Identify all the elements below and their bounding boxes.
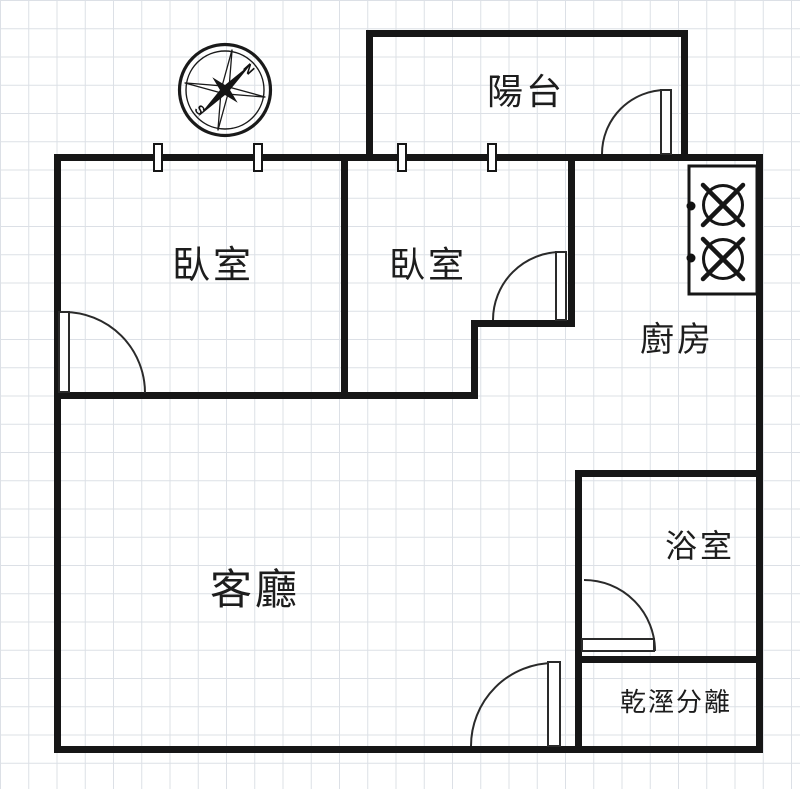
gas-stove-icon (687, 166, 758, 294)
room-label-living-room: 客廳 (210, 569, 300, 611)
compass-south-label: S (192, 102, 209, 119)
room-label-bedroom-1: 臥室 (172, 247, 254, 285)
window-marker (154, 144, 162, 171)
floor-plan: N S 陽台 臥室 臥室 廚房 客廳 浴室 乾溼分離 (0, 0, 800, 789)
stove-knob (687, 254, 696, 263)
room-label-bathroom: 浴室 (665, 530, 735, 562)
door-bedroom-1 (59, 312, 145, 393)
room-label-balcony: 陽台 (487, 74, 565, 110)
room-label-dry-wet-separation: 乾溼分離 (620, 689, 732, 715)
window-marker (254, 144, 262, 171)
door-bedroom-2 (493, 252, 566, 320)
floor-plan-drawing: N S (0, 0, 800, 789)
door-bathroom (582, 580, 655, 651)
compass-icon: N S (180, 45, 271, 136)
window-marker (488, 144, 496, 171)
compass-north-label: N (240, 60, 257, 77)
stove-knob (687, 202, 696, 211)
room-label-bedroom-2: 臥室 (389, 247, 467, 283)
window-marker (398, 144, 406, 171)
room-label-kitchen: 廚房 (640, 323, 714, 357)
door-entrance (471, 662, 560, 746)
door-balcony (602, 90, 671, 154)
